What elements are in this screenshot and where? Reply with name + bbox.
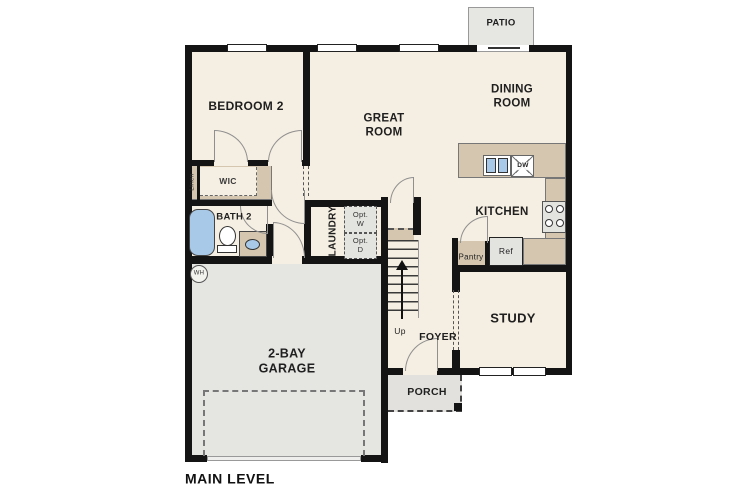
plan-title: MAIN LEVEL — [185, 471, 275, 488]
up-arrow-stem-icon — [401, 269, 403, 319]
room-label-great-room: GREAT ROOM — [364, 112, 405, 139]
optional-dryer: Opt. D — [344, 233, 377, 259]
burner-icon — [556, 205, 564, 213]
stair-landing — [388, 228, 414, 240]
wall-garage-right — [381, 197, 388, 463]
opt-d-label: Opt. D — [353, 237, 368, 255]
refrigerator-label: Ref — [499, 246, 513, 256]
room-label-patio: PATIO — [486, 17, 515, 28]
garage-door-sill — [207, 456, 361, 461]
room-label-bedroom2: BEDROOM 2 — [208, 99, 283, 113]
vanity-sink — [245, 239, 260, 250]
up-label: Up — [394, 326, 405, 336]
wall-study-left-bottom — [452, 350, 460, 368]
wall-exterior-right — [566, 45, 572, 375]
burner-icon — [545, 219, 553, 227]
opt-w-label: Opt. W — [353, 211, 368, 229]
room-label-garage: 2-BAY GARAGE — [259, 346, 316, 376]
window — [399, 44, 439, 52]
porch-post — [454, 403, 462, 411]
stairs-treads — [388, 240, 419, 318]
toilet-base — [217, 245, 237, 253]
room-label-foyer: FOYER — [419, 331, 457, 343]
window — [317, 44, 357, 52]
room-label-study: STUDY — [490, 310, 536, 325]
floor-plan: Opt. W Opt. D BEDROOM 2 GREAT ROOM DININ… — [0, 0, 750, 500]
burner-icon — [556, 219, 564, 227]
wall-linen-divider — [197, 164, 200, 200]
kitchen-counter-bottom — [523, 238, 566, 265]
burner-icon — [545, 205, 553, 213]
room-label-wic: WIC — [219, 176, 236, 186]
optional-washer: Opt. W — [344, 206, 377, 233]
toilet — [219, 226, 236, 246]
dishwasher-label: DW — [516, 162, 529, 170]
wall-garage-bottom-left — [185, 455, 207, 462]
room-label-laundry: LAUNDRY — [328, 206, 339, 257]
sliding-door-leaf — [488, 47, 520, 49]
wall-laundry-left — [304, 200, 311, 258]
wall-study-left-top — [452, 272, 460, 292]
room-label-bath2: BATH 2 — [216, 211, 251, 222]
room-label-pantry: Pantry — [459, 252, 484, 261]
wall-bedroom-right — [303, 52, 310, 166]
room-label-kitchen: KITCHEN — [475, 206, 528, 220]
garage-door-dashed — [203, 390, 365, 456]
kitchen-sink-basin — [498, 158, 508, 173]
wall-pantry-left — [452, 238, 458, 268]
kitchen-sink-basin — [486, 158, 496, 173]
window — [513, 367, 546, 376]
room-label-porch: PORCH — [407, 386, 446, 398]
water-heater-label: WH — [194, 270, 205, 277]
window — [227, 44, 267, 52]
room-label-dining-room: DINING ROOM — [491, 83, 533, 110]
window — [479, 367, 512, 376]
bathtub — [189, 209, 215, 256]
wall-kitchen-study — [452, 265, 572, 272]
wall-stair-right — [413, 197, 421, 235]
room-label-linen: Linen — [189, 173, 196, 190]
